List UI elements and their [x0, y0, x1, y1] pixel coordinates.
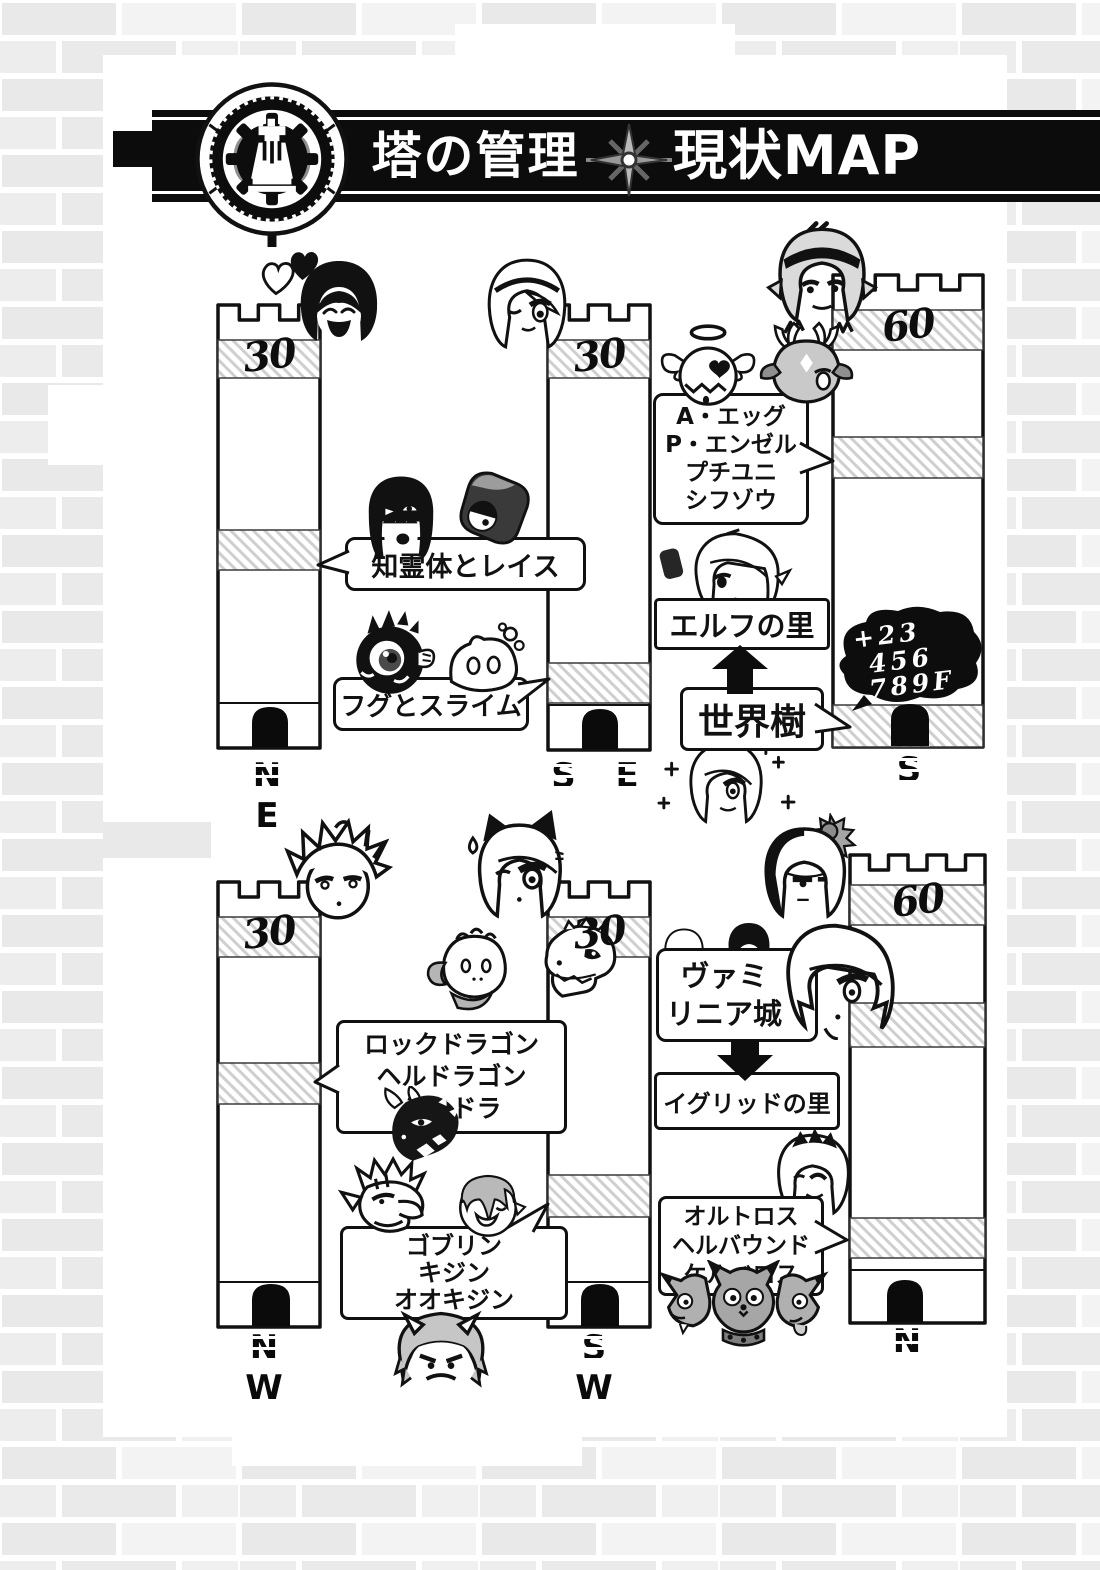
angel-egg-icon	[646, 320, 766, 424]
compass-star-icon	[586, 122, 672, 198]
content-notch-bottom	[232, 1432, 582, 1466]
banner-left-tab	[113, 131, 155, 167]
tower-gear-emblem-icon	[190, 80, 354, 250]
manga-map-page: 塔の管理 現状MAP 30 30 60 30 30 60 N E S E S N…	[0, 0, 1100, 1570]
ookijin-oni-icon	[383, 1298, 499, 1400]
flower-haired-girl-icon	[746, 813, 868, 933]
chireitai-spirit-girl-icon	[353, 470, 449, 562]
location-box-elf-village: エルフの里	[654, 598, 830, 650]
banner-title-right: 現状MAP	[672, 119, 922, 193]
slime-icon	[428, 620, 540, 708]
direction-label-s: S	[864, 750, 954, 790]
location-box-world-tree: 世界樹	[680, 687, 824, 751]
location-box-igrid-village: イグリッドの里	[654, 1072, 840, 1130]
banner-title-left: 塔の管理	[368, 121, 583, 191]
direction-label-se: S E	[550, 756, 654, 796]
kijin-icon	[446, 1164, 530, 1240]
direction-label-sw: S W	[546, 1328, 656, 1368]
cerberus-icon	[646, 1260, 841, 1368]
content-notch-top	[455, 24, 735, 60]
vampire-girl-icon	[760, 918, 908, 1040]
stray-brick	[103, 822, 211, 858]
wraith-icon	[438, 466, 540, 560]
content-notch-left	[48, 385, 108, 465]
direction-label-n: N	[862, 1322, 952, 1362]
direction-label-nw: N W	[216, 1328, 326, 1368]
goblin-icon	[331, 1156, 449, 1244]
rock-dragon-icon	[418, 920, 530, 1022]
direction-label-ne: N E	[222, 756, 326, 796]
